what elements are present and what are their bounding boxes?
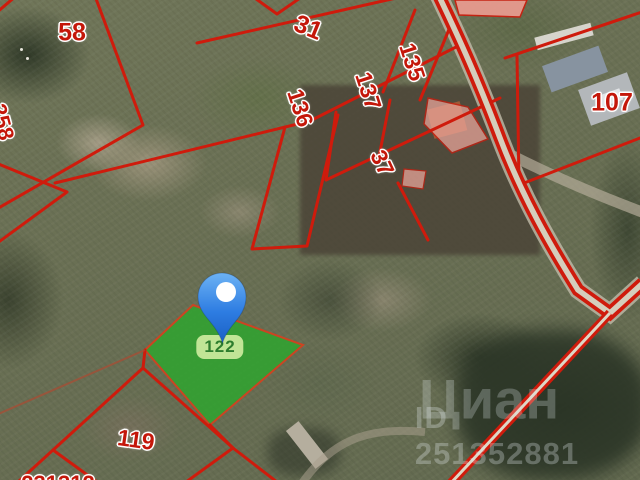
parcel-label-107: 107 [591, 89, 633, 118]
map-viewport[interactable]: 582583113513713637107119231312 122 Циан … [0, 0, 640, 480]
parcel-label-119: 119 [116, 424, 157, 456]
pin-inner-circle [216, 282, 236, 302]
faint-boundary [0, 350, 145, 415]
cadastral-overlay [0, 0, 640, 480]
parcel-label-231312: 231312 [21, 471, 94, 480]
building-footprint [455, 0, 527, 17]
dirt-track [300, 431, 425, 480]
parcel-label-58: 58 [58, 19, 86, 48]
building-footprint [402, 169, 426, 189]
pin-icon [195, 272, 253, 348]
location-pin[interactable] [195, 272, 253, 348]
